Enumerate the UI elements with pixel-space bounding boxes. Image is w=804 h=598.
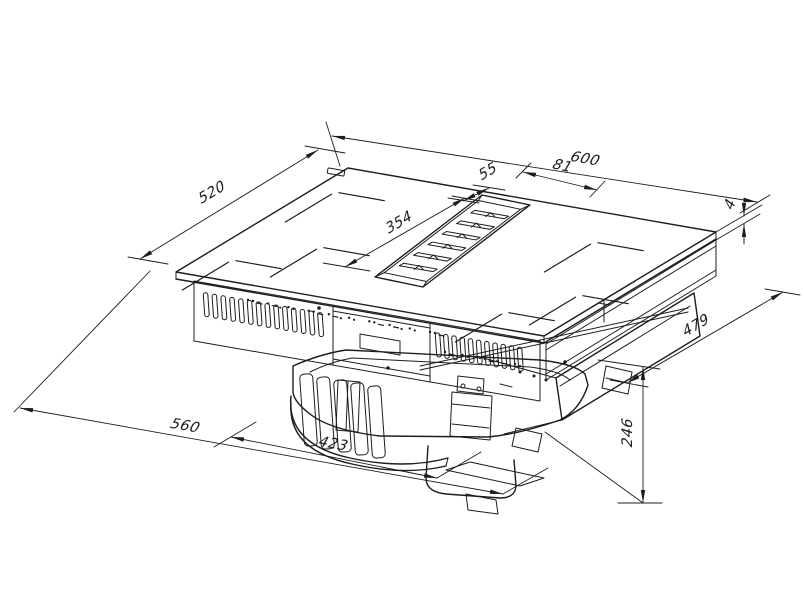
blower-assembly bbox=[291, 293, 700, 514]
dimension-label-below-top-height: 246 bbox=[618, 415, 636, 450]
hob-isometric-drawing: 60081553545204479246560423 bbox=[0, 0, 804, 598]
dimension-label-hob-depth: 520 bbox=[197, 176, 226, 209]
dimension-cutout-width: 560 bbox=[14, 271, 548, 494]
dimension-label-cutout-width: 560 bbox=[167, 415, 204, 436]
technical-drawing-page: 60081553545204479246560423 bbox=[0, 0, 804, 598]
hob-body-front-right-face bbox=[546, 240, 716, 380]
dimension-label-glass-thickness: 4 bbox=[721, 194, 739, 214]
dimension-label-vent-offset-front: 354 bbox=[384, 206, 413, 239]
dimension-hob-width: 600 bbox=[326, 122, 770, 213]
hob-body-front-left-face bbox=[194, 281, 540, 401]
dimension-vent-width: 55 bbox=[448, 157, 505, 203]
downdraft-vent-grille bbox=[375, 195, 530, 287]
dimension-label-vent-offset-right: 81 bbox=[549, 156, 577, 176]
right-tray bbox=[420, 293, 700, 452]
